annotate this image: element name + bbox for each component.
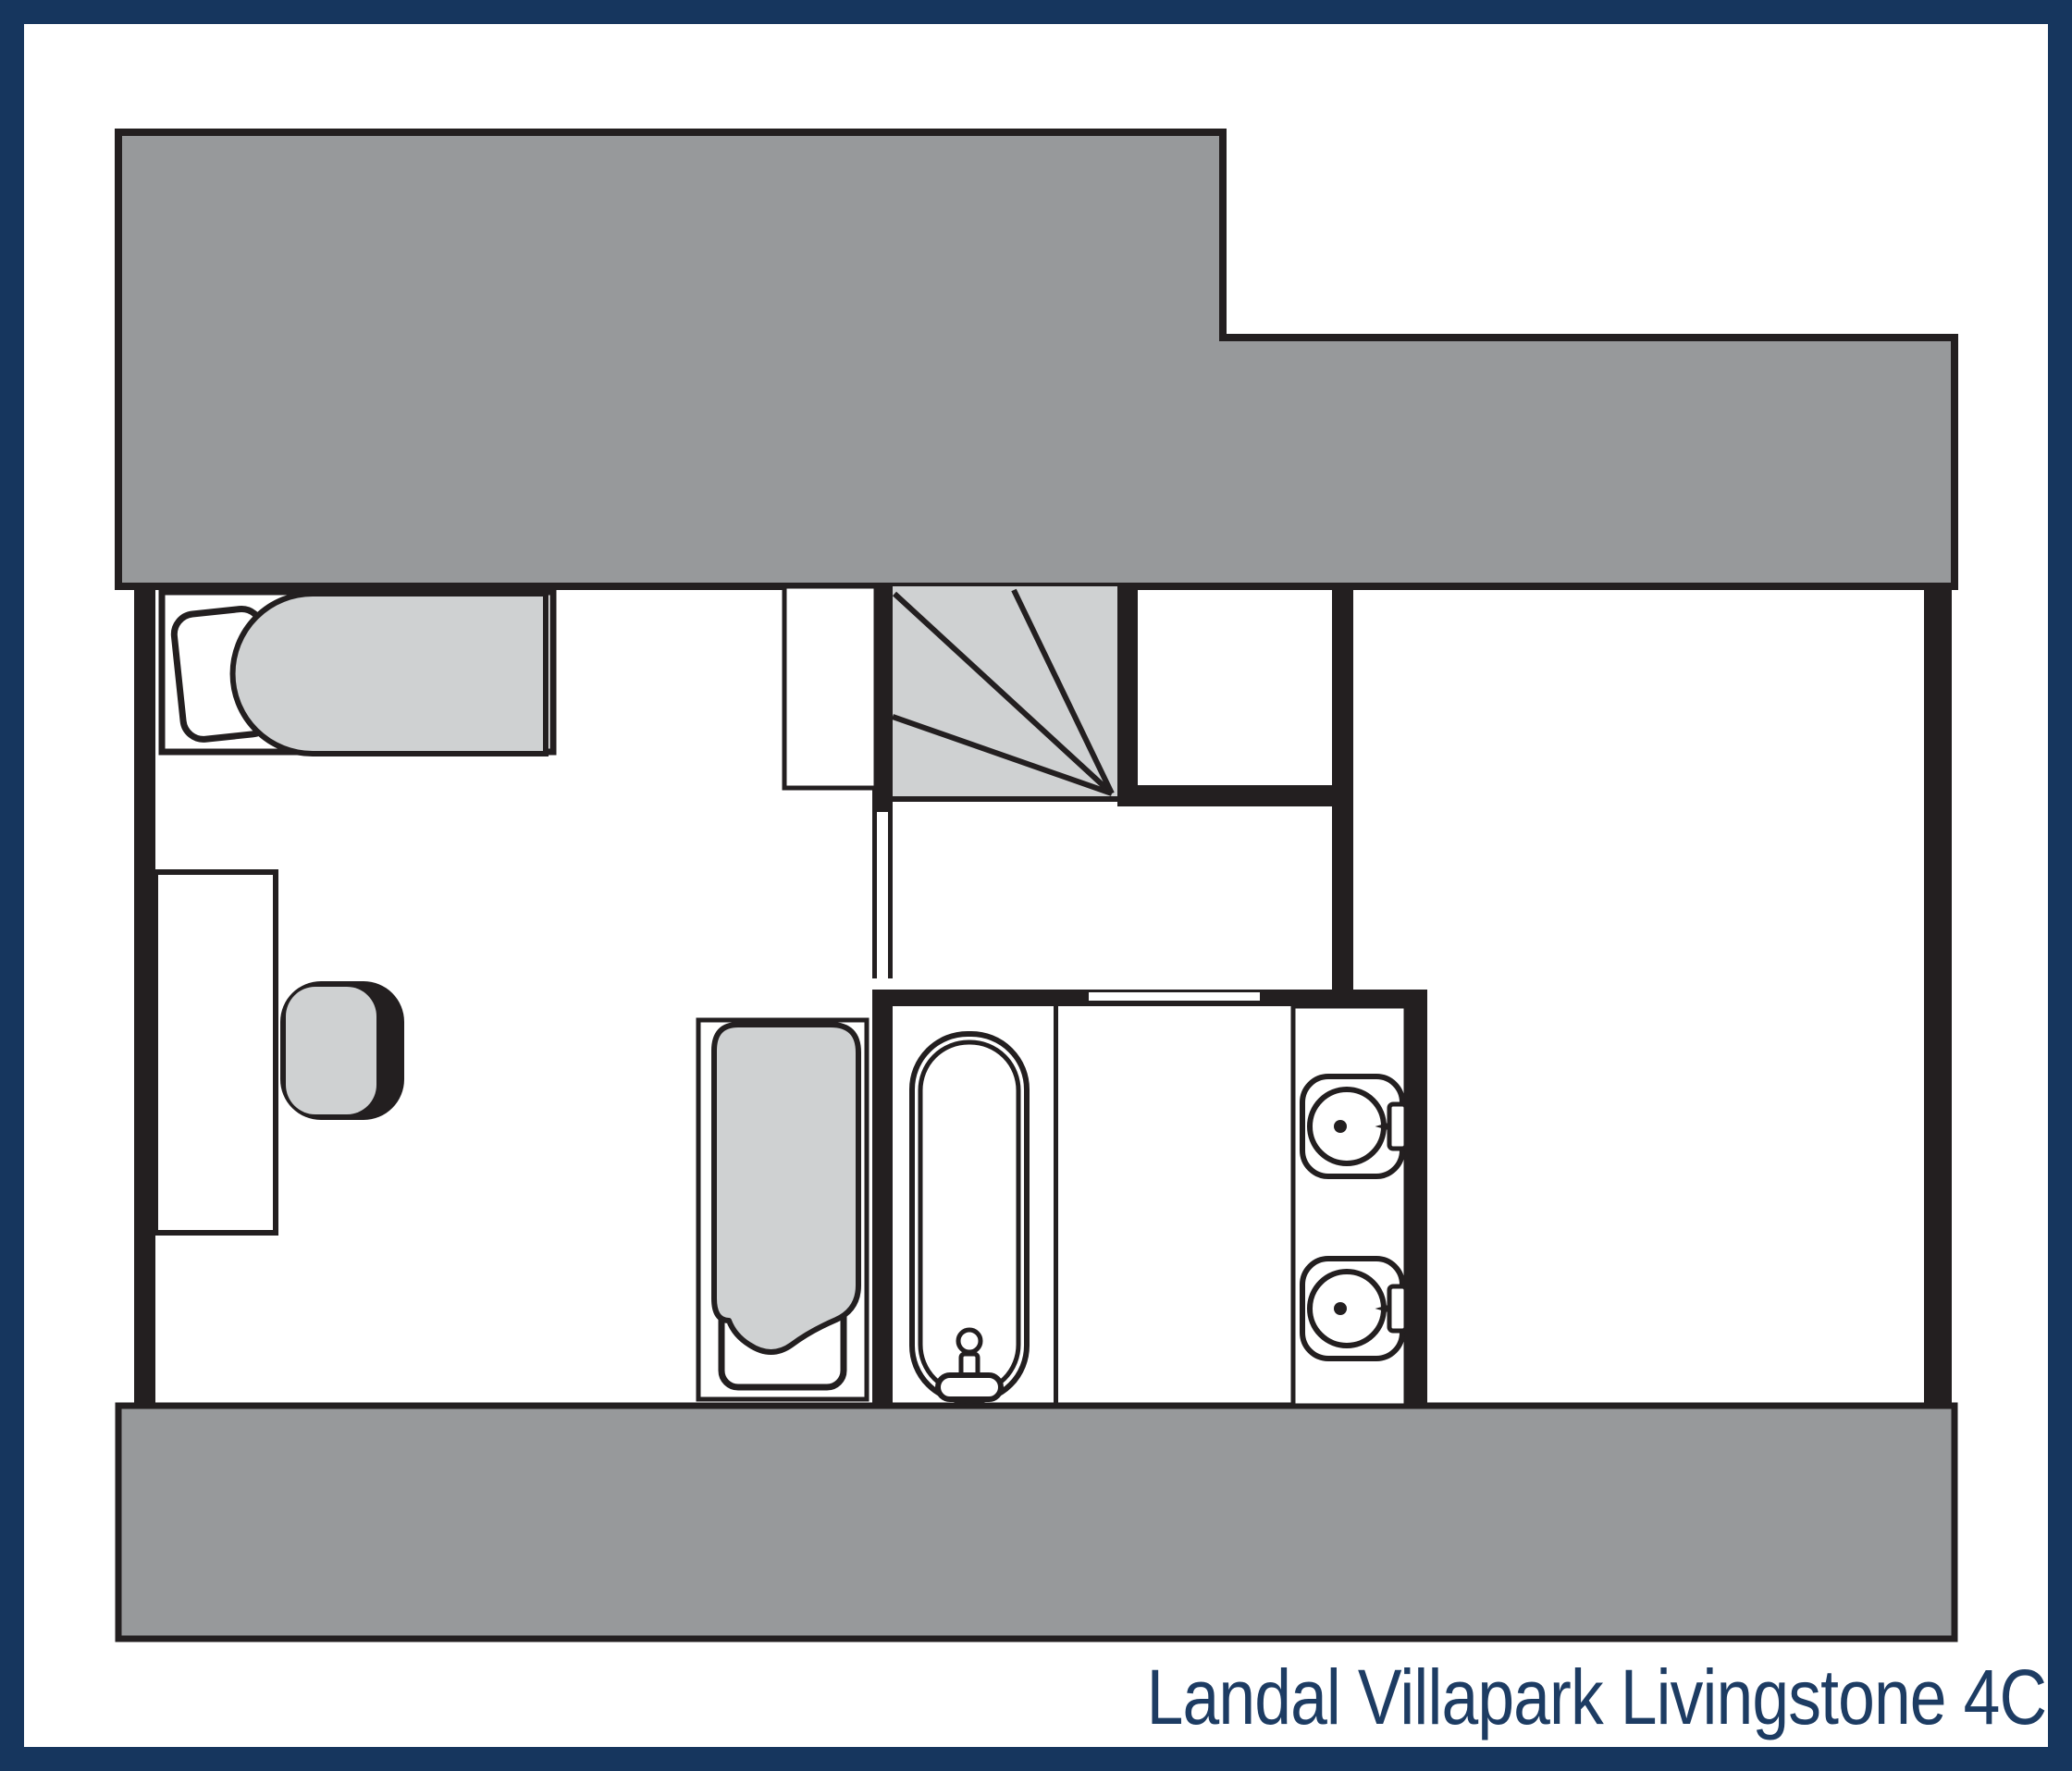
bed xyxy=(162,592,553,754)
bedroom-door-jamb-left xyxy=(872,812,877,978)
stairs xyxy=(893,586,1117,801)
plan-title: Landal Villapark Livingstone 4C xyxy=(1146,1654,2046,1740)
sink-1-faucet xyxy=(1389,1104,1406,1149)
wall-middle-lower xyxy=(872,1006,893,1406)
wall-left xyxy=(134,583,155,1408)
wall-landing-right xyxy=(1332,583,1353,990)
sink-2 xyxy=(1302,1259,1406,1359)
sink-1 xyxy=(1302,1076,1406,1176)
bedroom-door-jamb-right xyxy=(888,812,893,978)
roof-mass xyxy=(118,132,1955,586)
sink-1-drain xyxy=(1334,1120,1347,1133)
bed-blanket xyxy=(233,594,546,754)
bathtub-drain xyxy=(958,1330,980,1352)
wall-console-right xyxy=(1406,1006,1427,1406)
wall-right xyxy=(1924,586,1952,1406)
bathtub xyxy=(912,1034,1027,1401)
bath-screen-line xyxy=(1054,1006,1058,1406)
floorplan-canvas xyxy=(0,0,2072,1771)
wall-under-stairs xyxy=(1117,785,1353,806)
bathroom-door-opening xyxy=(1089,992,1260,1001)
desk xyxy=(155,872,276,1233)
lower-elevation-band xyxy=(118,1406,1955,1639)
wall-stairs-right xyxy=(1117,583,1138,805)
bathtub-faucet-base xyxy=(938,1375,1001,1399)
shower xyxy=(698,1020,867,1399)
sink-2-faucet xyxy=(1389,1286,1406,1331)
sink-2-drain xyxy=(1334,1302,1347,1315)
closet xyxy=(784,586,876,788)
sink-console xyxy=(1293,1006,1406,1406)
chair xyxy=(280,981,404,1120)
floorplan-page: Landal Villapark Livingstone 4C xyxy=(0,0,2072,1771)
chair-seat xyxy=(286,987,376,1114)
shower-curtain xyxy=(714,1025,858,1352)
